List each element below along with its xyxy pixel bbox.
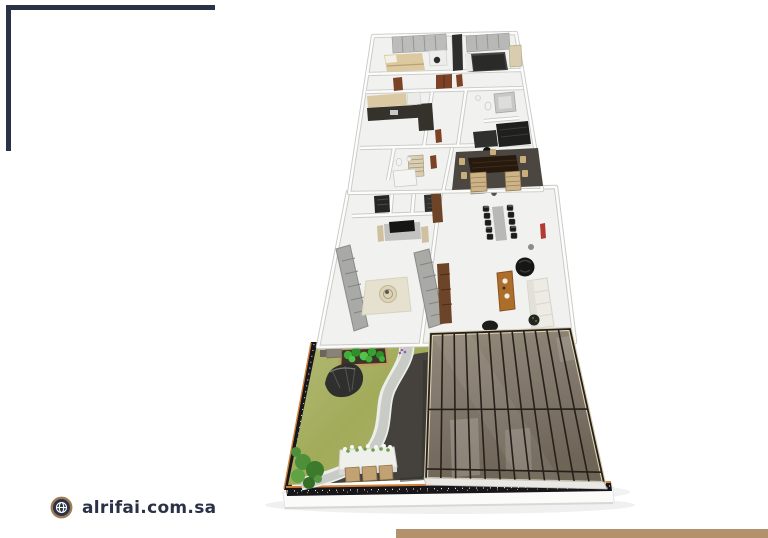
majlis-furniture [452, 148, 543, 190]
floor-plan-render [0, 0, 768, 538]
brand: alrifai.com.sa [50, 496, 216, 519]
dining-set [483, 205, 517, 241]
pergola-canopy [424, 329, 607, 489]
website-text: alrifai.com.sa [82, 498, 216, 518]
garden-pavers [345, 465, 393, 482]
garden-planter [340, 347, 388, 366]
page: alrifai.com.sa [0, 0, 768, 538]
wardrobe-dark [452, 34, 463, 71]
globe-icon [50, 496, 73, 519]
coffee-table-wood [497, 271, 515, 311]
rooms-block [349, 33, 543, 193]
black-lounge-chair [516, 258, 535, 277]
tv-screen [389, 220, 415, 233]
living-block [318, 180, 575, 347]
